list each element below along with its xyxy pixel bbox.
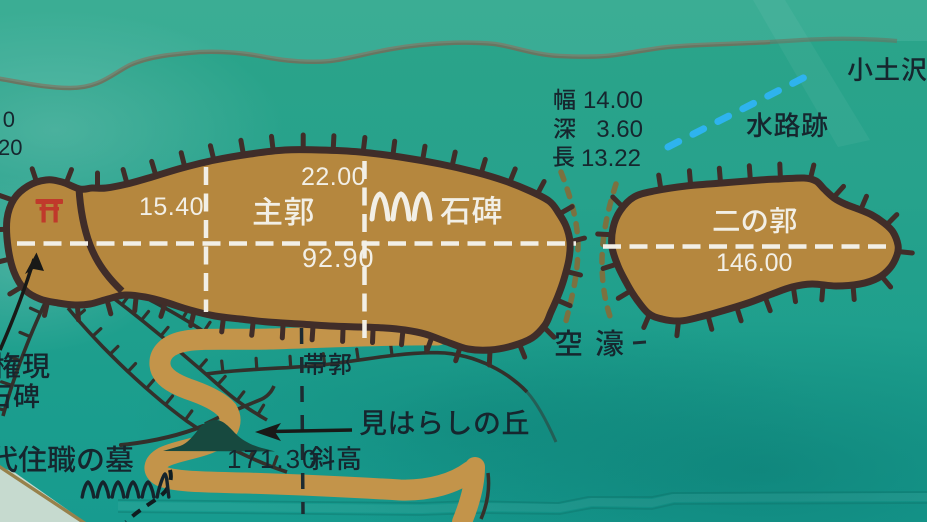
svg-text:146.00: 146.00: [716, 249, 792, 277]
svg-text:14.00: 14.00: [583, 87, 643, 114]
svg-text:22.00: 22.00: [301, 163, 366, 191]
svg-text:13.22: 13.22: [581, 145, 641, 172]
svg-text:15.40: 15.40: [139, 193, 204, 221]
svg-text:3.60: 3.60: [596, 116, 643, 143]
svg-text:0: 0: [3, 107, 15, 132]
svg-text:20: 20: [0, 135, 22, 160]
svg-text:92.90: 92.90: [302, 243, 375, 273]
svg-text:171.30: 171.30: [227, 444, 319, 474]
